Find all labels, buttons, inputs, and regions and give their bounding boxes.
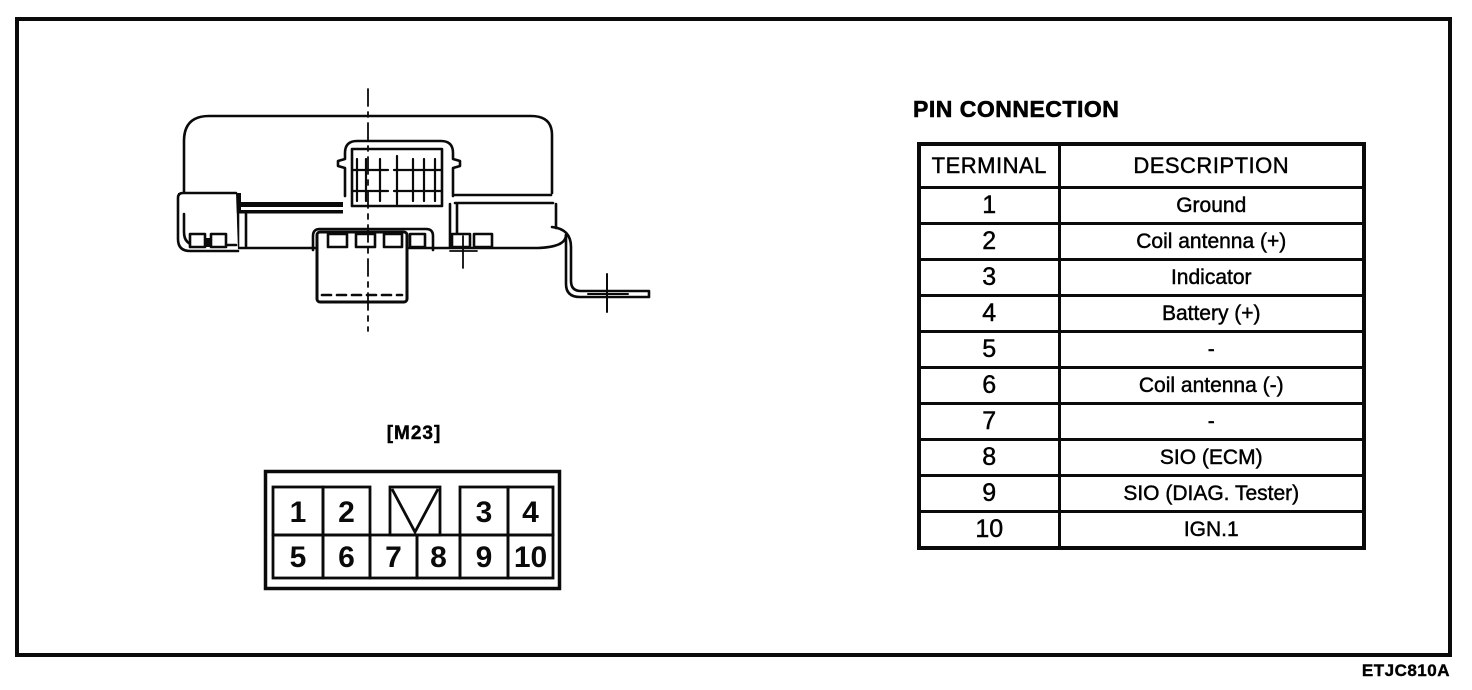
description-cell: Coil antenna (+) <box>1059 224 1364 260</box>
module-mounting-bracket <box>552 227 649 312</box>
connector-pin-number: 5 <box>290 541 307 574</box>
table-row: 2 Coil antenna (+) <box>919 224 1364 260</box>
terminal-cell: 9 <box>919 476 1059 512</box>
terminal-cell: 4 <box>919 296 1059 332</box>
table-row: 7 - <box>919 404 1364 440</box>
connector-pin-number: 10 <box>514 541 547 574</box>
table-row: 3 Indicator <box>919 260 1364 296</box>
description-cell: SIO (DIAG. Tester) <box>1059 476 1364 512</box>
keyway-notch-icon <box>392 489 438 532</box>
module-bottom-connector <box>313 229 492 302</box>
terminal-column-header: TERMINAL <box>919 144 1059 188</box>
terminal-cell: 6 <box>919 368 1059 404</box>
bracket-hole-crosshair <box>588 274 628 312</box>
table-row: 9 SIO (DIAG. Tester) <box>919 476 1364 512</box>
description-cell: Battery (+) <box>1059 296 1364 332</box>
description-cell: - <box>1059 332 1364 368</box>
connector-pin-number: 7 <box>385 541 402 574</box>
connector-pin-number: 9 <box>476 541 493 574</box>
connector-cells <box>273 487 553 578</box>
table-row: 1 Ground <box>919 188 1364 224</box>
module-left-foot <box>178 193 238 251</box>
terminal-cell: 5 <box>919 332 1059 368</box>
module-side-view-drawing <box>150 78 690 340</box>
connector-designation-label: [M23] <box>264 423 564 445</box>
table-row: 8 SIO (ECM) <box>919 440 1364 476</box>
module-top-connector <box>338 141 460 206</box>
connector-pin-number: 8 <box>430 541 447 574</box>
description-cell: Coil antenna (-) <box>1059 368 1364 404</box>
description-cell: IGN.1 <box>1059 512 1364 549</box>
terminal-cell: 10 <box>919 512 1059 549</box>
table-header-row: TERMINAL DESCRIPTION <box>919 144 1364 188</box>
table-row: 5 - <box>919 332 1364 368</box>
connector-pin-number: 4 <box>522 496 539 529</box>
terminal-cell: 2 <box>919 224 1059 260</box>
manual-page: [M23] 1 2 3 4 5 <box>0 0 1472 690</box>
terminal-cell: 1 <box>919 188 1059 224</box>
description-cell: SIO (ECM) <box>1059 440 1364 476</box>
terminal-cell: 3 <box>919 260 1059 296</box>
table-row: 4 Battery (+) <box>919 296 1364 332</box>
description-cell: Indicator <box>1059 260 1364 296</box>
terminal-cell: 7 <box>919 404 1059 440</box>
pin-connection-title: PIN CONNECTION <box>913 96 1119 123</box>
table-row: 6 Coil antenna (-) <box>919 368 1364 404</box>
description-cell: Ground <box>1059 188 1364 224</box>
description-cell: - <box>1059 404 1364 440</box>
connector-pin-number: 1 <box>290 496 307 529</box>
connector-pin-number: 2 <box>338 496 355 529</box>
connector-pinout-diagram: 1 2 3 4 5 6 7 8 9 10 <box>262 469 564 591</box>
pin-connection-table: TERMINAL DESCRIPTION 1 Ground 2 Coil ant… <box>917 142 1366 550</box>
figure-code: ETJC810A <box>1250 661 1450 681</box>
connector-pin-number: 6 <box>338 541 355 574</box>
table-row: 10 IGN.1 <box>919 512 1364 549</box>
description-column-header: DESCRIPTION <box>1059 144 1364 188</box>
terminal-cell: 8 <box>919 440 1059 476</box>
connector-pin-number: 3 <box>476 496 493 529</box>
